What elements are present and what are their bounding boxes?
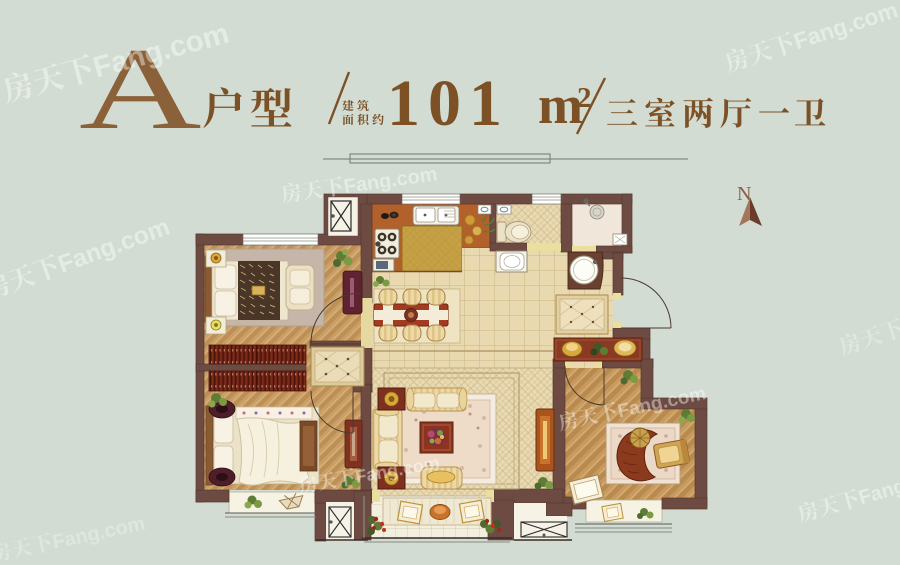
svg-text:101: 101 — [387, 67, 510, 140]
